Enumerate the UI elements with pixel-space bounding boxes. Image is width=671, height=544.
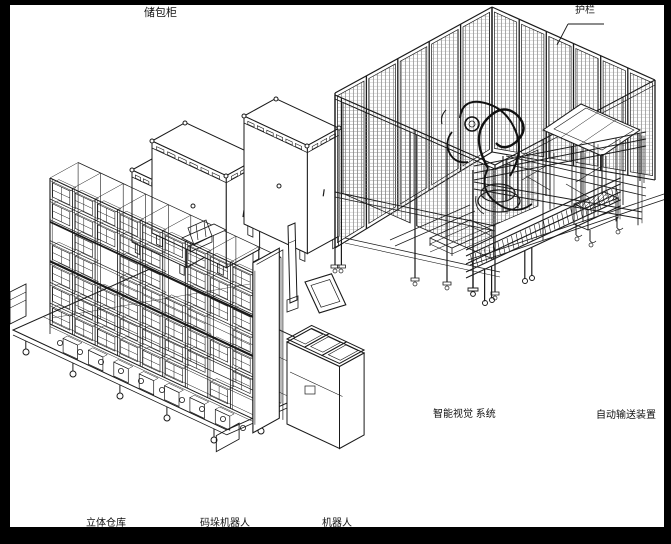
svg-text:立体仓库: 立体仓库 bbox=[86, 516, 126, 529]
svg-text:储包柜: 储包柜 bbox=[144, 5, 177, 19]
svg-text:护栏: 护栏 bbox=[575, 3, 595, 16]
svg-text:机器人: 机器人 bbox=[322, 516, 352, 529]
svg-text:码垛机器人: 码垛机器人 bbox=[200, 516, 250, 529]
svg-text:自动输送装置: 自动输送装置 bbox=[596, 408, 656, 421]
svg-text:智能视觉 系统: 智能视觉 系统 bbox=[433, 407, 496, 420]
